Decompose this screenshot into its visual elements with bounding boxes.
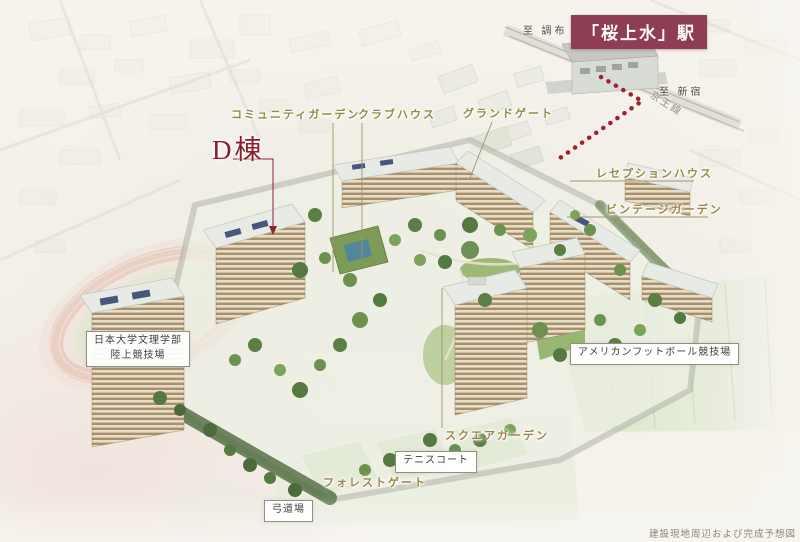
aerial-rendering: 至 調布 「桜上水」駅 至 新宿 京王線 コミュニティガーデン クラブハウス グ… <box>0 0 800 542</box>
label-vintage-garden: ビンテージガーデン <box>606 201 723 217</box>
sakurajosui-station-label: 「桜上水」駅 <box>571 15 707 49</box>
direction-chofu-label: 至 調布 <box>523 22 568 37</box>
label-kyudo-field: 弓道場 <box>264 500 313 522</box>
university-field-line2: 陸上競技場 <box>111 350 166 361</box>
label-d-wing: D棟 <box>212 128 265 167</box>
label-university-field: 日本大学文理学部 陸上競技場 <box>86 331 190 367</box>
right-fade <box>718 0 800 542</box>
university-field-line1: 日本大学文理学部 <box>94 335 182 346</box>
label-reception-house: レセプションハウス <box>596 165 713 181</box>
rendering-caption: 建設現地周辺および完成予想図 <box>649 526 796 540</box>
label-club-house: クラブハウス <box>358 106 436 122</box>
label-square-garden: スクエアガーデン <box>445 427 549 443</box>
label-forest-gate: フォレストゲート <box>323 474 427 490</box>
label-community-garden: コミュニティガーデン <box>231 106 360 122</box>
label-football-field: アメリカンフットボール競技場 <box>570 343 739 365</box>
label-grand-gate: グランドゲート <box>463 105 554 121</box>
label-tennis-court: テニスコート <box>395 451 477 473</box>
